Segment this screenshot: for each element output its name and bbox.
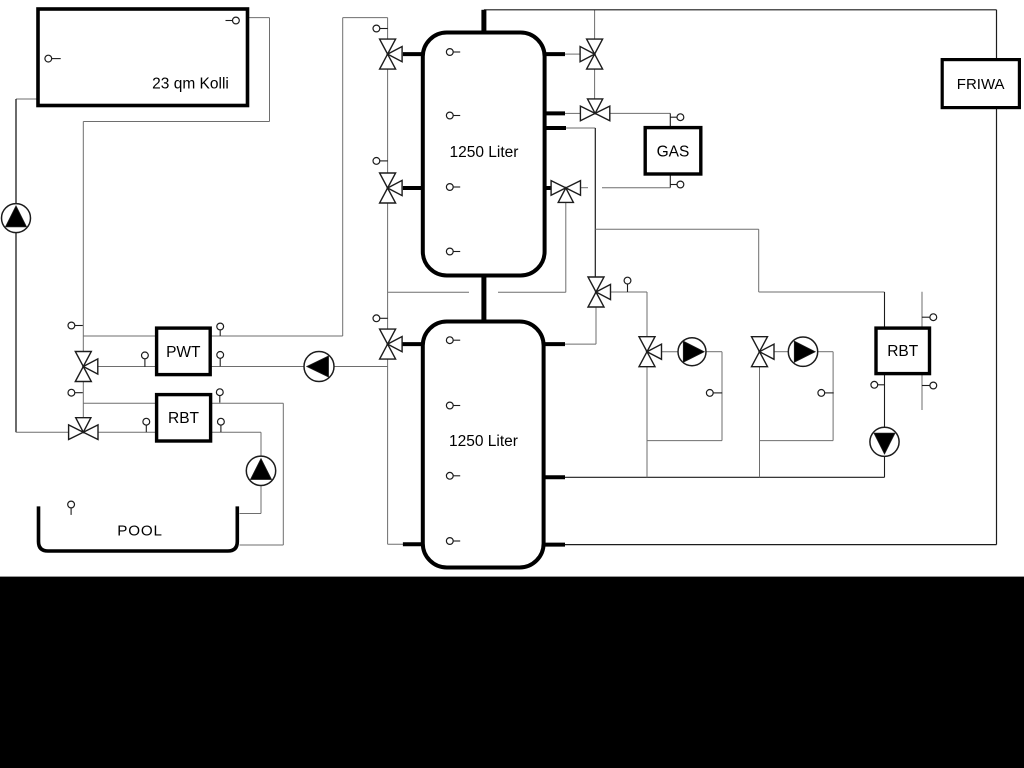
svg-text:POOL: POOL [117,522,162,539]
svg-text:RBT: RBT [887,343,919,360]
svg-text:23 qm Kolli: 23 qm Kolli [152,76,229,93]
svg-text:GAS: GAS [657,143,690,160]
svg-text:RBT: RBT [168,410,200,427]
svg-text:PWT: PWT [166,344,201,361]
svg-text:FRIWA: FRIWA [957,76,1005,93]
svg-text:1250 Liter: 1250 Liter [449,433,518,450]
svg-text:1250 Liter: 1250 Liter [450,144,519,161]
